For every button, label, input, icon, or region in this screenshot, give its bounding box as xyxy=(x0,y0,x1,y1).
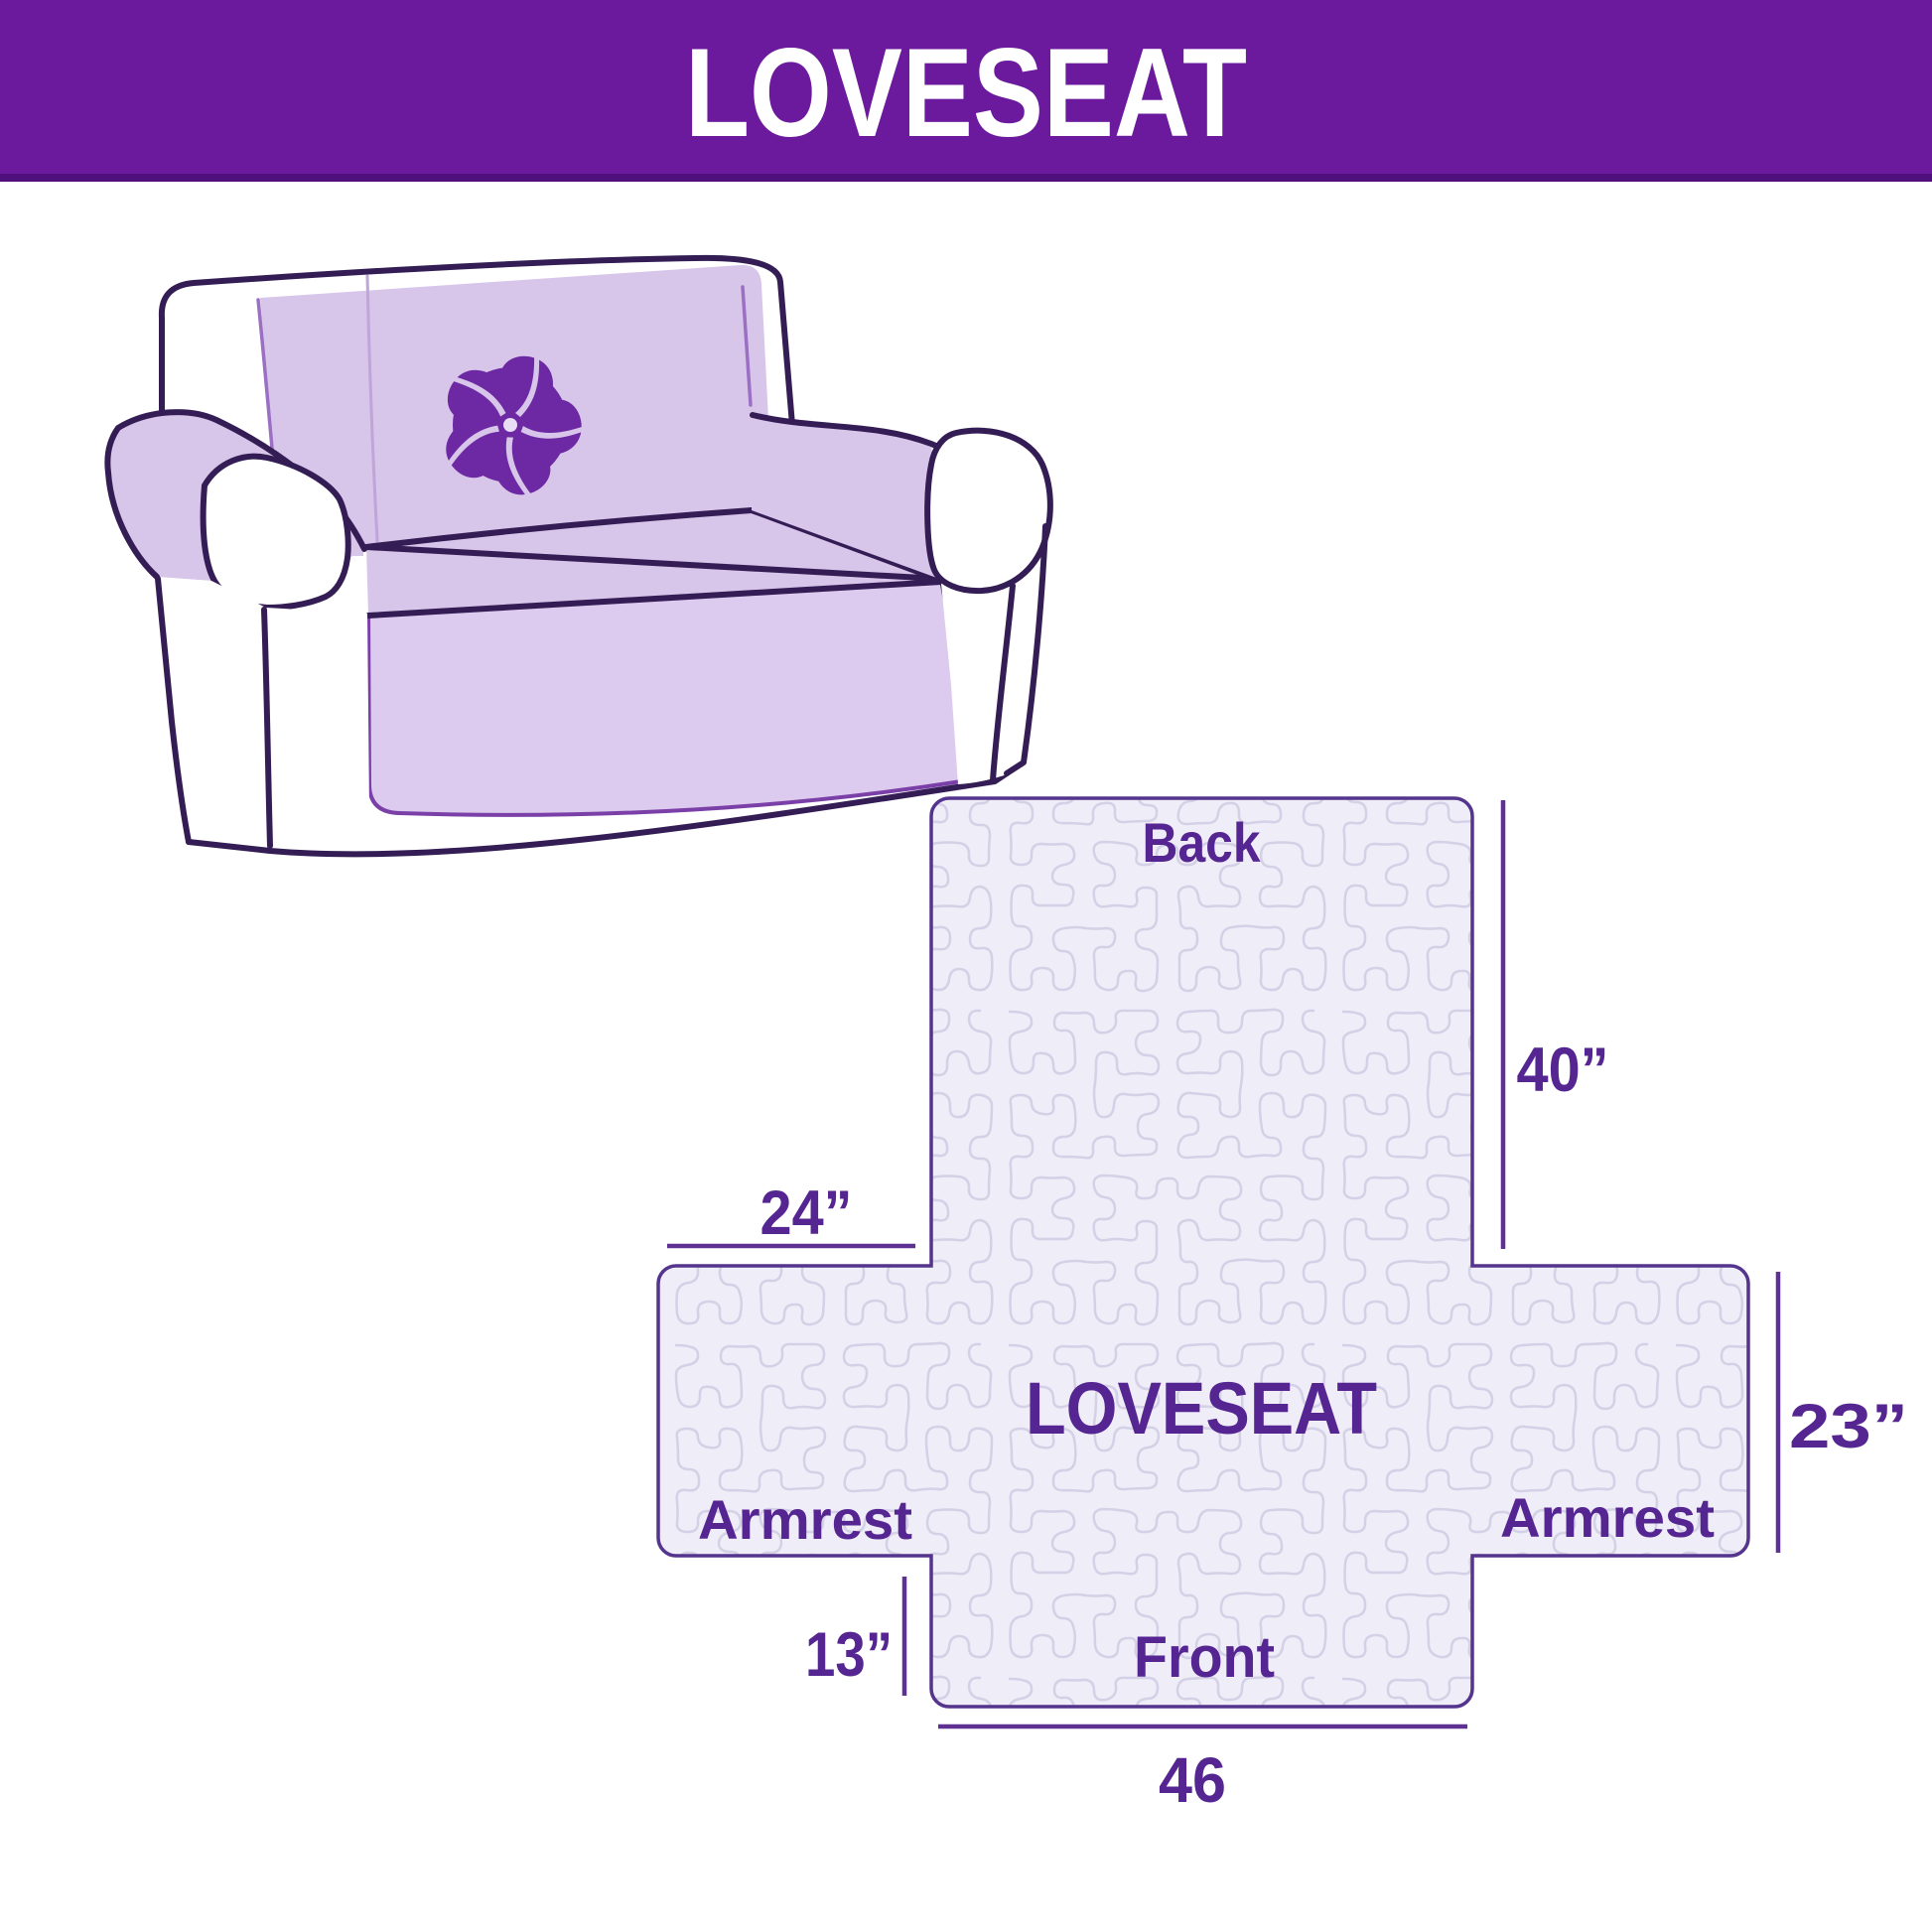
svg-text:40”: 40” xyxy=(1517,1035,1609,1105)
svg-text:Armrest: Armrest xyxy=(698,1488,912,1551)
svg-text:LOVESEAT: LOVESEAT xyxy=(1026,1367,1377,1449)
svg-text:LOVESEAT: LOVESEAT xyxy=(685,22,1247,163)
svg-text:24”: 24” xyxy=(760,1178,853,1248)
svg-text:46: 46 xyxy=(1159,1744,1226,1816)
svg-text:13”: 13” xyxy=(805,1620,893,1690)
svg-text:Front: Front xyxy=(1134,1625,1275,1690)
svg-text:23”: 23” xyxy=(1789,1392,1908,1461)
svg-text:Armrest: Armrest xyxy=(1500,1486,1715,1549)
svg-text:Back: Back xyxy=(1143,811,1262,874)
